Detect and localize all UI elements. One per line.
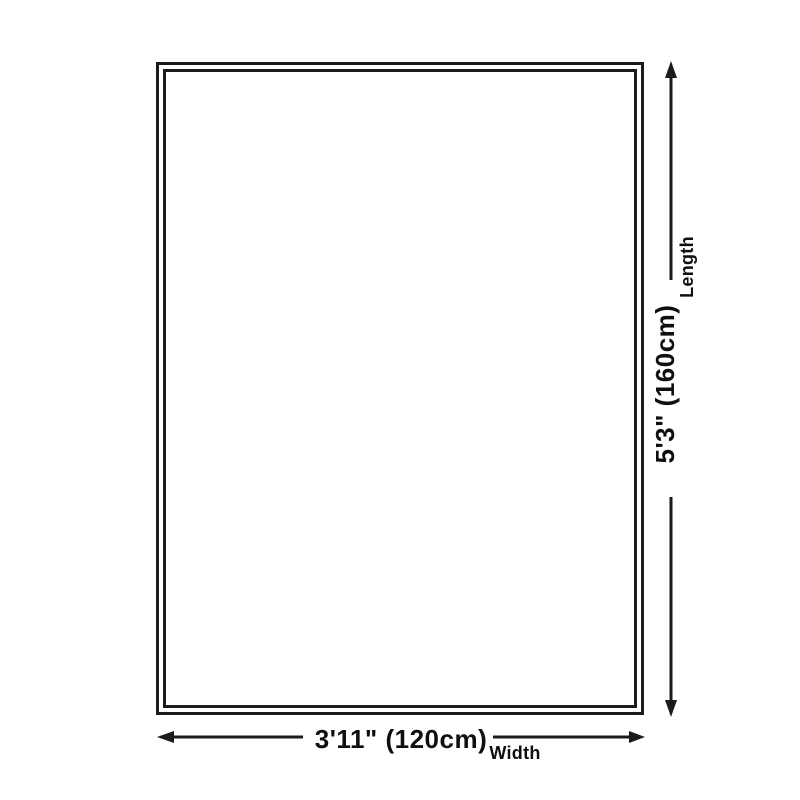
rug-inner-outline — [163, 69, 637, 708]
length-axis-label: Length — [678, 236, 696, 298]
length-dimension-label: 5'3" (160cm) — [652, 305, 678, 464]
rug-size-diagram: 5'3" (160cm) Length 3'11" (120cm) Width — [0, 0, 800, 800]
rug-outline — [156, 62, 644, 715]
arrow-down-icon — [665, 700, 677, 717]
width-dimension-label: 3'11" (120cm) — [315, 726, 487, 752]
width-axis-label: Width — [489, 744, 540, 762]
arrow-right-icon — [629, 731, 645, 743]
